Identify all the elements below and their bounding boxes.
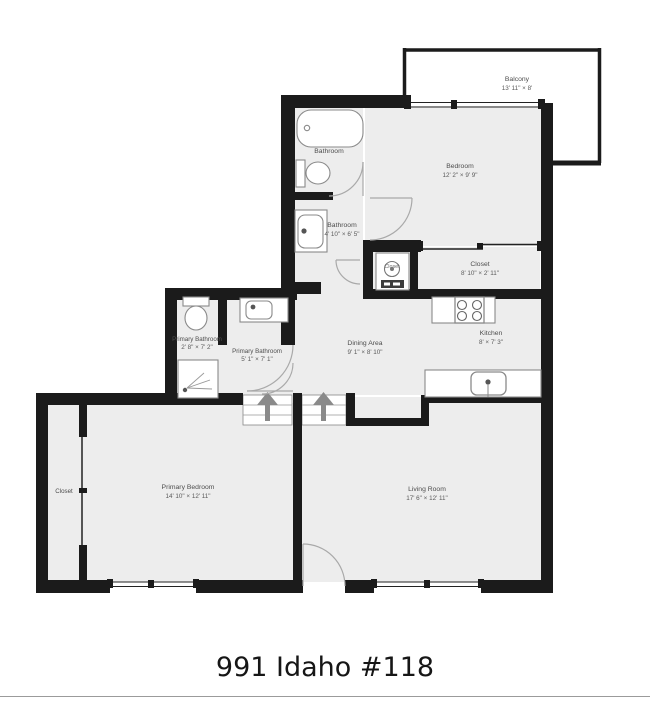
washer-dryer [376,253,409,290]
floorplan-title: 991 Idaho #118 [0,652,650,683]
floorplan-drawing [0,0,650,704]
room-label-bedroom: Bedroom12' 2" × 9' 9" [442,163,477,180]
footer-divider [0,696,650,697]
room-label-balcony: Balcony13' 11" × 8' [502,76,533,93]
kitchen-sink [425,370,541,397]
stove [432,297,495,323]
floorplan-page: Balcony13' 11" × 8' Bedroom12' 2" × 9' 9… [0,0,650,704]
room-label-living-room: Living Room17' 6" × 12' 11" [406,486,448,503]
room-label-primary-bathroom-right: Primary Bathroom5' 1" × 7' 1" [232,348,282,364]
room-label-bathroom-top: Bathroom [314,148,343,157]
bathtub [297,110,363,147]
shower [178,360,218,398]
toilet-primary-bathroom [183,297,209,330]
room-label-bathroom: Bathroom4' 10" × 6' 5" [324,222,359,239]
room-label-primary-bedroom: Primary Bedroom14' 10" × 12' 11" [162,484,215,501]
room-label-dining-area: Dining Area9' 1" × 8' 10" [347,340,382,357]
room-label-closet: Closet8' 10" × 2' 11" [461,261,499,278]
room-label-laundry-closet: Closet [384,264,399,271]
room-label-primary-closet: Closet [55,488,73,496]
sink-bathroom [295,210,327,252]
room-label-primary-bathroom-left: Primary Bathroom2' 8" × 7' 2" [172,336,222,352]
room-label-kitchen: Kitchen8' × 7' 3" [479,330,503,347]
sink-primary-bathroom [240,298,288,322]
